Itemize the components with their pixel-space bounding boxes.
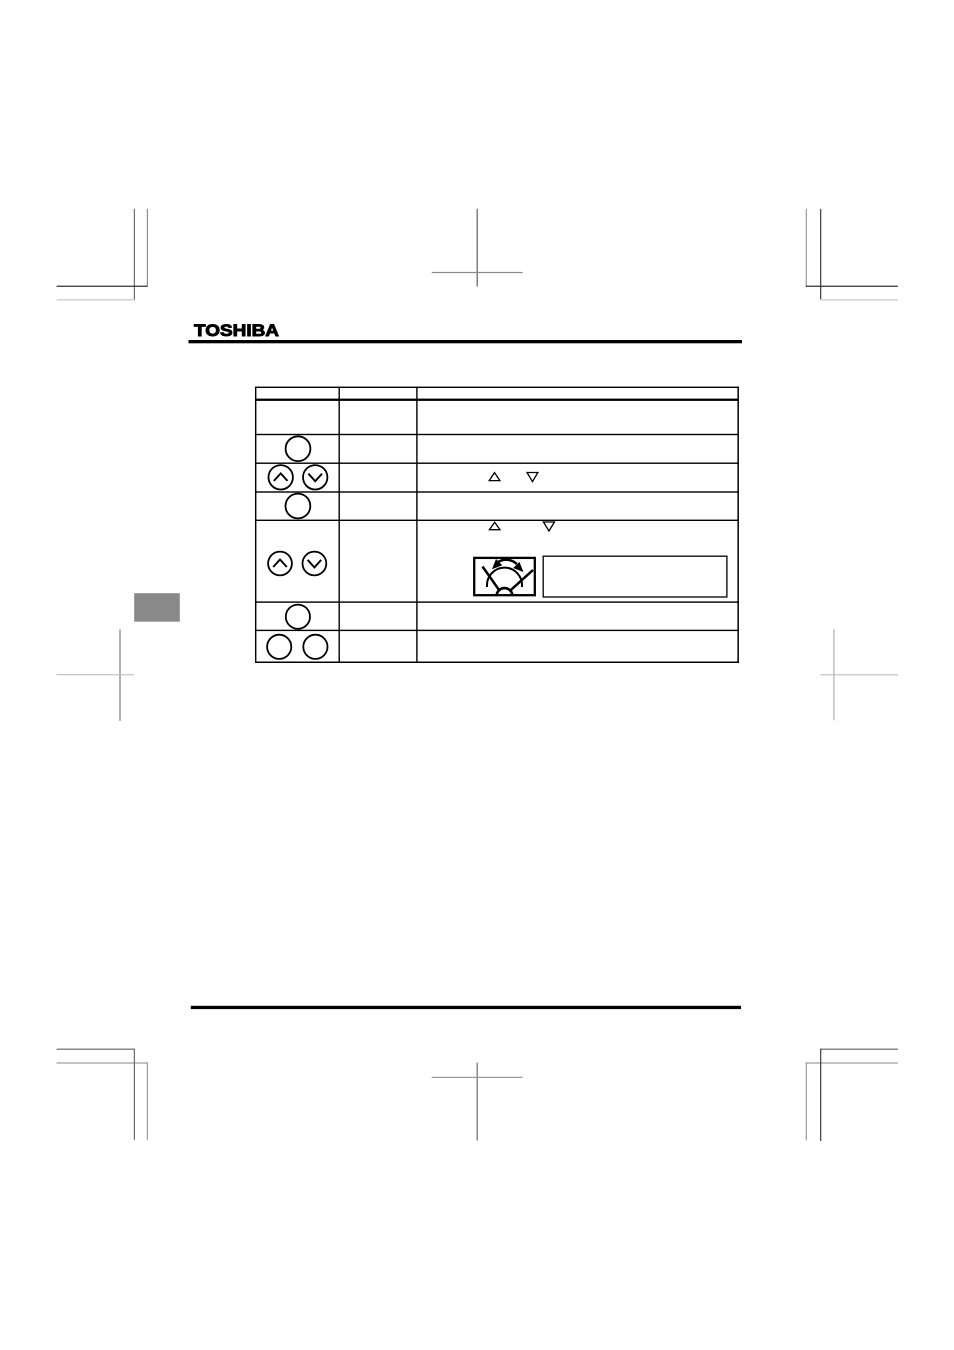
svg-text:TOSHIBA: TOSHIBA	[194, 322, 279, 340]
